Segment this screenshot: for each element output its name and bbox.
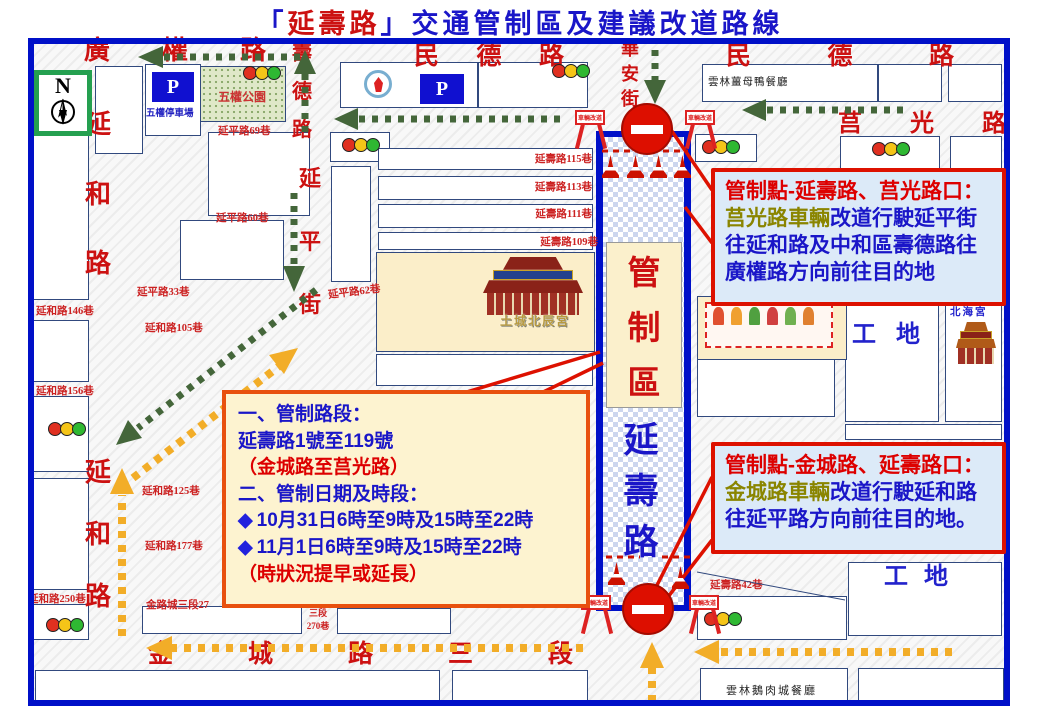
routes-overlay xyxy=(0,0,1040,720)
callout-line: 莒光路車輛改道行駛延平街 xyxy=(725,206,992,233)
barricade-icon: 車輛改道 xyxy=(688,595,722,635)
barricade-icon: 車輛改道 xyxy=(684,110,718,150)
callout-leader-line xyxy=(685,207,712,243)
cone-line-dashes xyxy=(602,151,690,557)
barricade-icon: 車輛改道 xyxy=(574,110,608,150)
callout-juguang-control-point: 管制點-延壽路、莒光路口： 莒光路車輛改道行駛延平街 往延和路及中和區壽德路往 … xyxy=(711,168,1006,306)
traffic-light-icon xyxy=(552,64,588,78)
compass-needle-icon xyxy=(48,97,78,127)
north-compass-icon: N xyxy=(34,70,92,136)
arrow-up-right-icon xyxy=(269,348,298,374)
callout-line: 往延和路及中和區壽德路往 xyxy=(725,233,992,260)
info-line: （金城路至莒光路） xyxy=(238,455,574,482)
callout-body: 改道行駛延和路 xyxy=(830,481,977,504)
arrow-up-icon xyxy=(110,468,134,494)
no-entry-icon xyxy=(622,583,674,635)
no-entry-icon xyxy=(621,103,673,155)
arrow-down-icon xyxy=(644,80,666,104)
arrow-left-icon xyxy=(146,636,172,660)
info-line-text: 11月1日6時至9時及15時至22時 xyxy=(257,537,522,558)
callout-line: 廣權路方向前往目的地 xyxy=(725,260,992,287)
title-bracket-open: 「 xyxy=(257,9,288,39)
info-line: 延壽路1號至119號 xyxy=(238,429,574,456)
callout-title: 管制點-延壽路、莒光路口： xyxy=(725,179,992,206)
callout-jincheng-control-point: 管制點-金城路、延壽路口： 金城路車輛改道行駛延和路 往延平路方向前往目的地。 xyxy=(711,442,1006,554)
arrow-left-icon xyxy=(334,108,358,130)
traffic-light-icon xyxy=(46,618,82,632)
bullet-diamond-icon: ◆ xyxy=(238,537,253,558)
traffic-light-icon xyxy=(243,66,279,80)
info-line: ◆11月1日6時至9時及15時至22時 xyxy=(238,535,574,562)
info-line: ◆10月31日6時至9時及15時至22時 xyxy=(238,508,574,535)
compass-north-label: N xyxy=(39,75,87,97)
title-rest: 」交通管制區及建議改道路線 xyxy=(381,9,784,39)
control-info-box: 一、管制路段： 延壽路1號至119號 （金城路至莒光路） 二、管制日期及時段： … xyxy=(222,390,590,608)
info-line: 二、管制日期及時段： xyxy=(238,482,574,509)
page-title: 「延壽路」交通管制區及建議改道路線 xyxy=(0,2,1040,41)
info-line-text: 10月31日6時至9時及15時至22時 xyxy=(257,510,534,531)
arrow-up-icon xyxy=(640,642,664,668)
info-line: （時狀況提早或延長） xyxy=(238,562,574,589)
traffic-control-map: 「延壽路」交通管制區及建議改道路線 五權公園 P 五權停車場 P 雲林薑母鴨餐廳… xyxy=(0,0,1040,720)
callout-subject: 金城路車輛 xyxy=(725,481,830,504)
traffic-light-icon xyxy=(872,142,908,156)
callout-body: 改道行駛延平街 xyxy=(830,207,977,230)
bullet-diamond-icon: ◆ xyxy=(238,510,253,531)
callout-subject: 莒光路車輛 xyxy=(725,207,830,230)
title-road-name: 延壽路 xyxy=(288,9,381,39)
traffic-light-icon xyxy=(342,138,378,152)
callout-line: 往延平路方向前往目的地。 xyxy=(725,507,992,534)
arrow-left-icon xyxy=(694,640,719,664)
arrow-down-icon xyxy=(283,266,305,292)
arrow-left-icon xyxy=(742,99,766,121)
callout-title: 管制點-金城路、延壽路口： xyxy=(725,453,992,480)
arrow-left-icon xyxy=(138,46,163,68)
traffic-light-icon xyxy=(48,422,84,436)
info-line: 一、管制路段： xyxy=(238,402,574,429)
callout-line: 金城路車輛改道行駛延和路 xyxy=(725,480,992,507)
